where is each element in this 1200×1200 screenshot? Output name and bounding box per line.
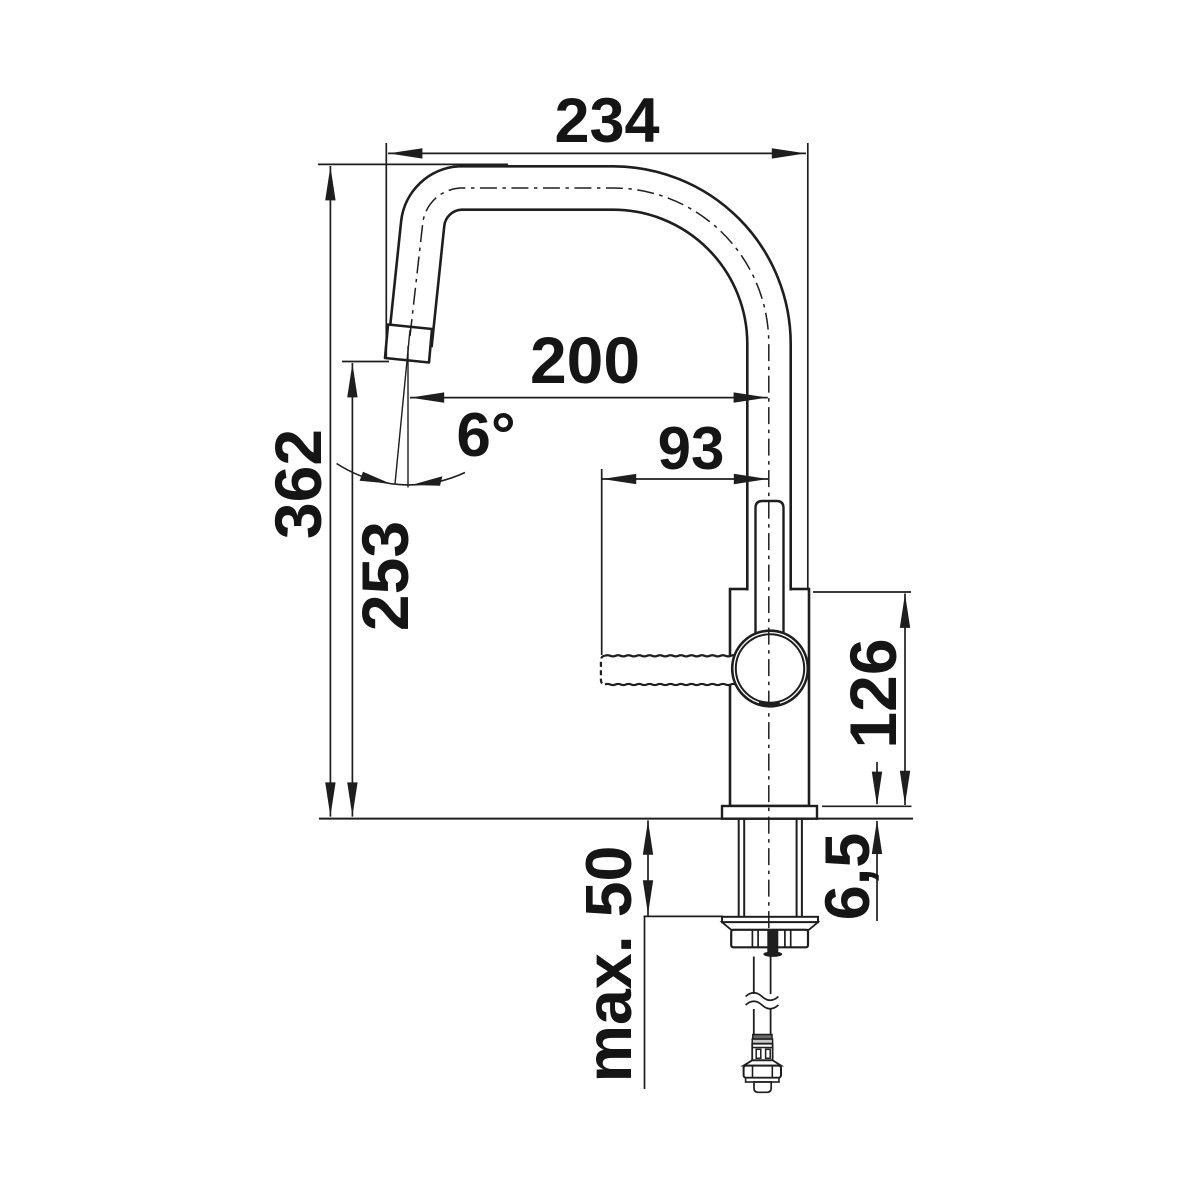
- svg-text:93: 93: [658, 415, 725, 482]
- svg-text:200: 200: [530, 323, 640, 397]
- svg-text:126: 126: [836, 638, 910, 748]
- svg-text:6°: 6°: [456, 401, 515, 470]
- svg-text:234: 234: [554, 86, 659, 156]
- svg-text:362: 362: [261, 429, 335, 539]
- svg-text:6,5: 6,5: [813, 833, 883, 921]
- svg-text:253: 253: [348, 521, 422, 631]
- svg-text:max. 50: max. 50: [573, 846, 645, 1083]
